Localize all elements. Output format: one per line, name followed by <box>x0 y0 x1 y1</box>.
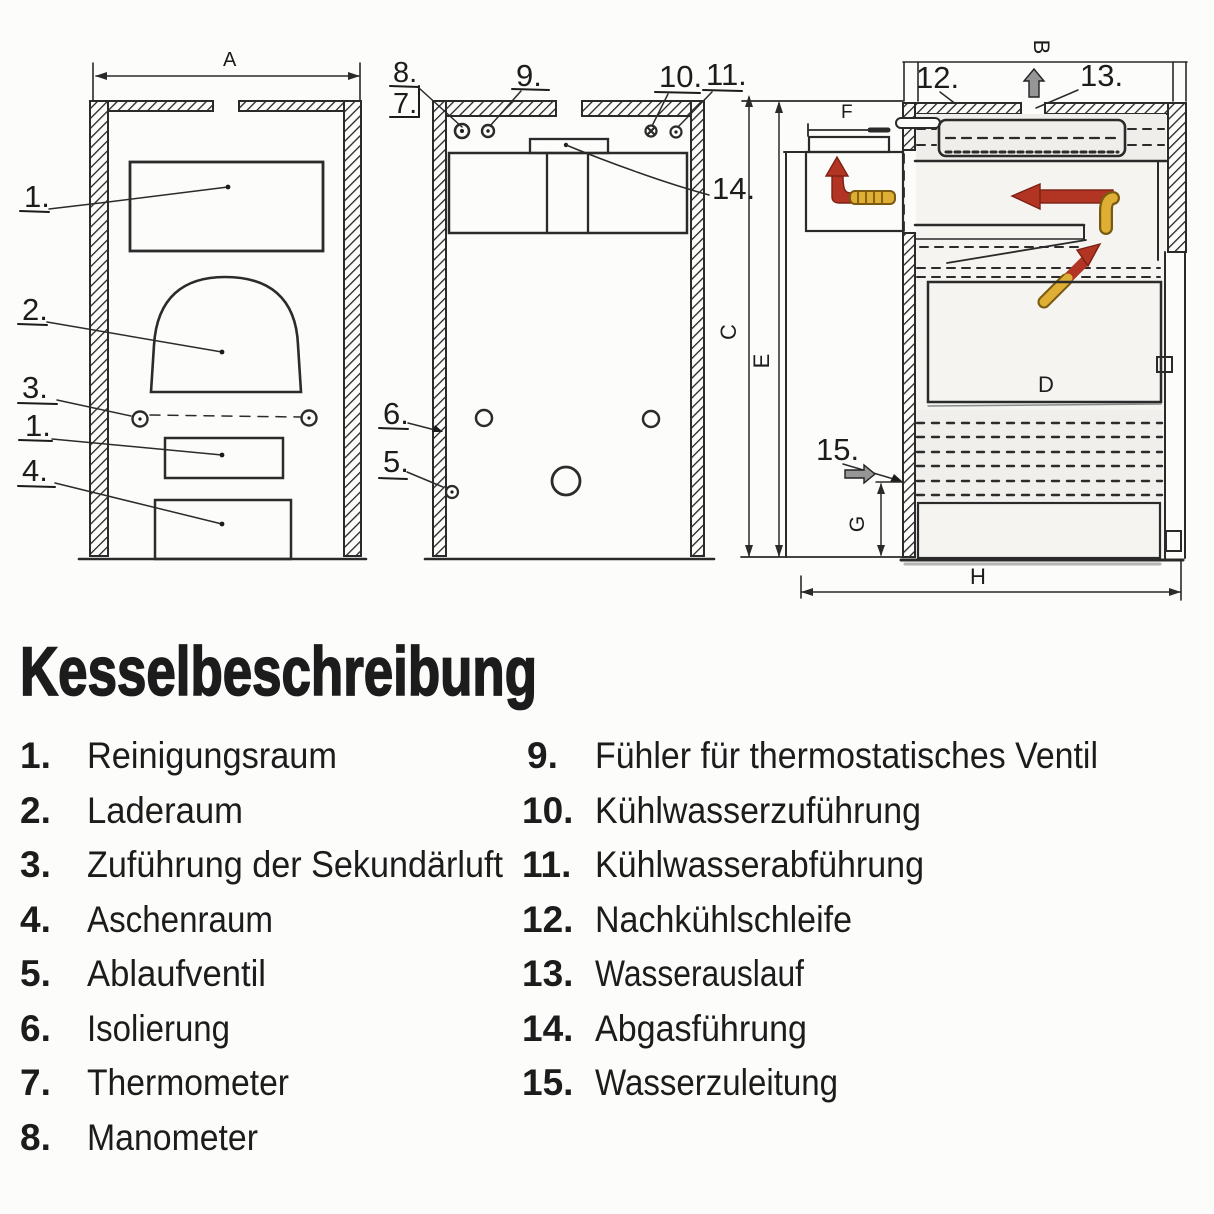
svg-text:Laderaum: Laderaum <box>87 790 243 831</box>
svg-text:3.: 3. <box>20 844 51 885</box>
svg-text:5.: 5. <box>20 953 51 994</box>
svg-text:14.: 14. <box>522 1008 573 1049</box>
svg-text:8.: 8. <box>393 57 417 89</box>
svg-text:F: F <box>841 102 853 123</box>
svg-text:13.: 13. <box>1080 58 1123 93</box>
svg-text:Wasserzuleitung: Wasserzuleitung <box>595 1062 838 1103</box>
svg-text:E: E <box>749 354 774 369</box>
svg-text:7.: 7. <box>393 88 417 120</box>
svg-text:6.: 6. <box>383 396 409 431</box>
svg-text:2.: 2. <box>22 292 48 327</box>
svg-text:B: B <box>1029 40 1054 55</box>
svg-text:G: G <box>846 516 869 532</box>
svg-text:Fühler für thermostatisches Ve: Fühler für thermostatisches Ventil <box>595 735 1098 776</box>
svg-text:C: C <box>716 324 741 340</box>
svg-text:Manometer: Manometer <box>87 1117 258 1158</box>
svg-text:10.: 10. <box>522 790 573 831</box>
svg-text:Aschenraum: Aschenraum <box>87 899 273 940</box>
svg-text:6.: 6. <box>20 1008 51 1049</box>
svg-text:3.: 3. <box>22 370 48 405</box>
svg-text:H: H <box>970 564 986 589</box>
svg-text:5.: 5. <box>383 444 409 479</box>
svg-text:4.: 4. <box>22 453 48 488</box>
svg-text:10.: 10. <box>659 59 702 94</box>
svg-text:15.: 15. <box>816 432 859 467</box>
svg-text:Nachkühlschleife: Nachkühlschleife <box>595 899 852 940</box>
svg-text:15.: 15. <box>522 1062 573 1103</box>
svg-text:Abgasführung: Abgasführung <box>595 1008 807 1049</box>
svg-text:11.: 11. <box>706 57 747 92</box>
svg-text:12.: 12. <box>522 899 573 940</box>
svg-text:Thermometer: Thermometer <box>87 1062 289 1103</box>
svg-text:Wasserauslauf: Wasserauslauf <box>595 953 805 994</box>
svg-text:9.: 9. <box>527 735 558 776</box>
svg-text:1.: 1. <box>25 408 51 443</box>
svg-text:2.: 2. <box>20 790 51 831</box>
svg-text:D: D <box>1038 372 1054 397</box>
svg-text:Ablaufventil: Ablaufventil <box>87 953 266 994</box>
svg-text:Reinigungsraum: Reinigungsraum <box>87 735 337 776</box>
svg-text:Kühlwasserzuführung: Kühlwasserzuführung <box>595 790 921 831</box>
svg-text:Zuführung der Sekundärluft: Zuführung der Sekundärluft <box>87 844 504 885</box>
svg-text:Isolierung: Isolierung <box>87 1008 230 1049</box>
svg-text:7.: 7. <box>20 1062 51 1103</box>
svg-text:1.: 1. <box>20 735 51 776</box>
svg-text:13.: 13. <box>522 953 573 994</box>
svg-text:12.: 12. <box>916 60 959 95</box>
svg-text:4.: 4. <box>20 899 51 940</box>
svg-text:Kesselbeschreibung: Kesselbeschreibung <box>20 633 537 710</box>
svg-text:Kühlwasserabführung: Kühlwasserabführung <box>595 844 924 885</box>
svg-text:A: A <box>223 49 237 71</box>
svg-text:11.: 11. <box>522 844 571 885</box>
svg-text:9.: 9. <box>516 58 542 93</box>
svg-text:8.: 8. <box>20 1117 51 1158</box>
svg-text:1.: 1. <box>24 179 50 214</box>
